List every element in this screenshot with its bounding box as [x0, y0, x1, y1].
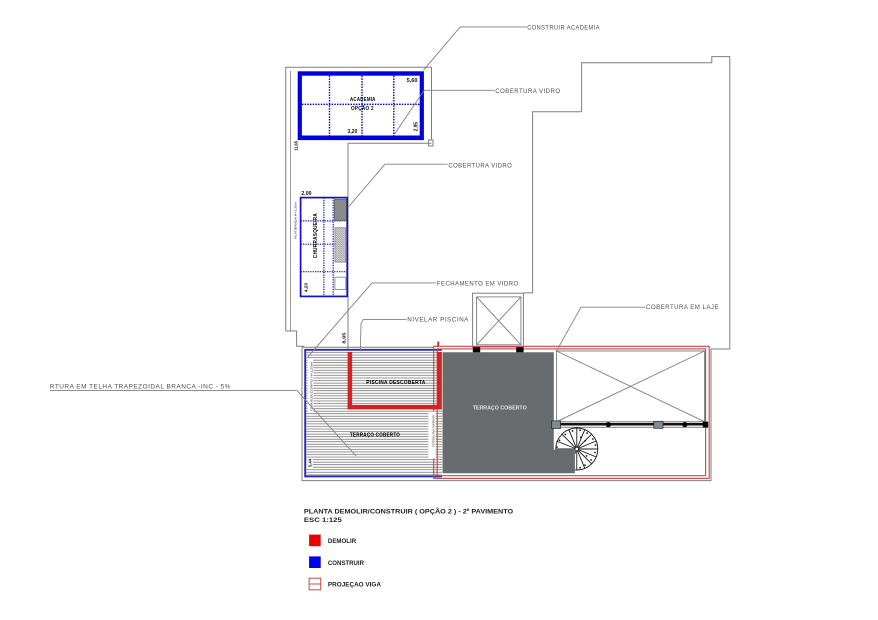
svg-text:ESC 1:125: ESC 1:125 — [304, 517, 342, 524]
svg-text:8,95: 8,95 — [342, 332, 348, 343]
svg-text:RTURA EM TELHA TRAPEZOIDAL BRA: RTURA EM TELHA TRAPEZOIDAL BRANCA -INC -… — [50, 385, 231, 391]
svg-text:PLATIBANDA H=1,20m: PLATIBANDA H=1,20m — [293, 201, 297, 238]
svg-text:2,95: 2,95 — [414, 122, 420, 131]
svg-text:11,65: 11,65 — [294, 141, 300, 151]
svg-text:CONSTRUIR: CONSTRUIR — [328, 560, 364, 567]
svg-text:COBERTURA EM LAJE: COBERTURA EM LAJE — [646, 305, 719, 311]
svg-text:CHURRASQUEIRA: CHURRASQUEIRA — [313, 213, 319, 258]
svg-text:NIVELAR PISCINA: NIVELAR PISCINA — [407, 318, 469, 324]
svg-text:PEITORIL PVA SUPERIOR: PEITORIL PVA SUPERIOR — [432, 414, 436, 446]
svg-text:5,60: 5,60 — [407, 78, 418, 84]
svg-text:TERRAÇO COBERTO: TERRAÇO COBERTO — [350, 432, 400, 438]
svg-text:4,20: 4,20 — [304, 282, 310, 292]
svg-text:2,00: 2,00 — [301, 191, 311, 197]
svg-text:TERRAÇO COBERTO: TERRAÇO COBERTO — [473, 406, 527, 412]
svg-text:OPÇÃO 2: OPÇÃO 2 — [351, 105, 374, 112]
svg-text:FECHAMENTO EM VIDRO: FECHAMENTO EM VIDRO — [437, 281, 519, 287]
svg-text:COBERTURA VIDRO: COBERTURA VIDRO — [495, 89, 560, 95]
svg-text:5,44: 5,44 — [308, 458, 313, 467]
svg-text:CONSTRUIR ACADEMIA: CONSTRUIR ACADEMIA — [527, 26, 600, 32]
svg-text:PROJEÇAO VIGA: PROJEÇAO VIGA — [328, 582, 381, 589]
svg-text:COBERTURA VIDRO: COBERTURA VIDRO — [448, 163, 512, 169]
svg-text:3,20: 3,20 — [347, 129, 357, 135]
svg-text:GUARDA CORPO H=1,20m: GUARDA CORPO H=1,20m — [310, 361, 314, 411]
svg-text:ACADEMIA: ACADEMIA — [350, 97, 376, 103]
svg-text:PLANTA DEMOLIR/CONSTRUIR ( OPÇ: PLANTA DEMOLIR/CONSTRUIR ( OPÇÃO 2 ) - 2… — [304, 507, 513, 516]
svg-text:DEMOLIR: DEMOLIR — [328, 538, 357, 545]
svg-text:PISCINA DESCOBERTA: PISCINA DESCOBERTA — [366, 380, 425, 386]
